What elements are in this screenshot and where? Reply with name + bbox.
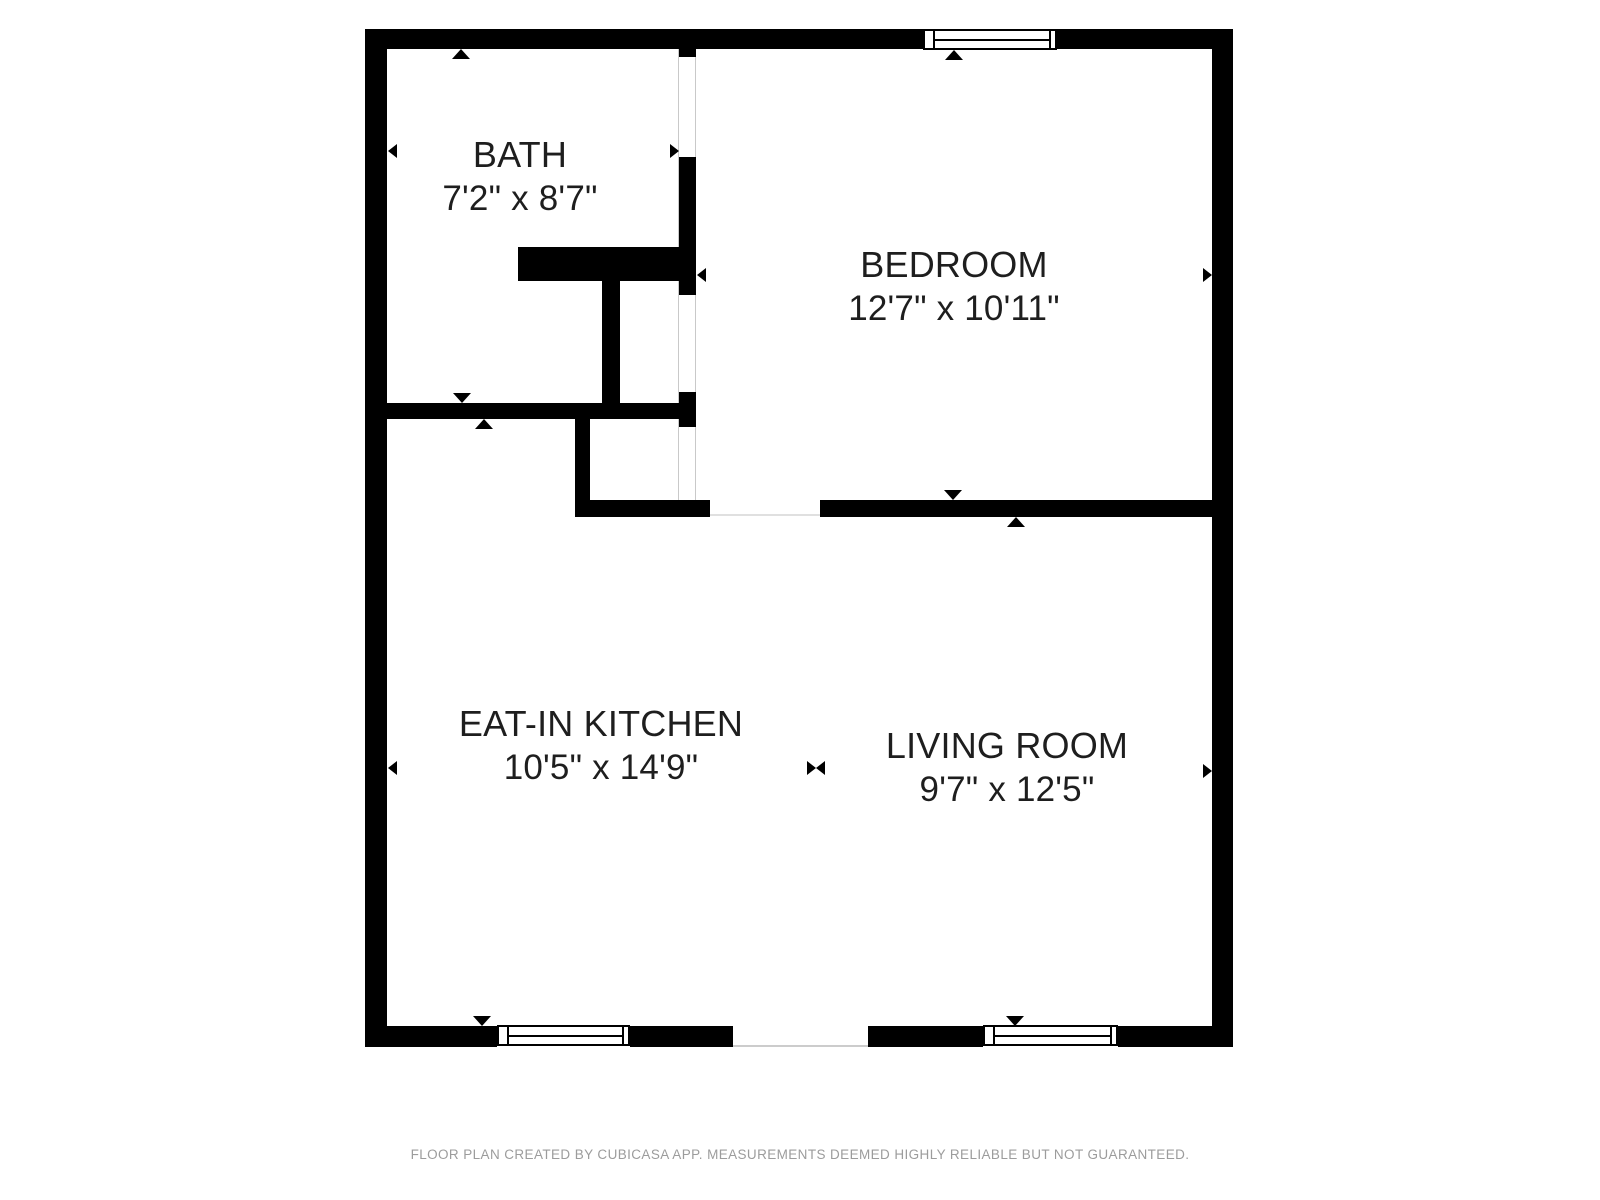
wall-outer-top: [365, 29, 1233, 49]
floor-plan: [0, 0, 1600, 1200]
room-label-living: LIVING ROOM 9'7" x 12'5": [886, 724, 1128, 812]
wall-outer-left: [365, 29, 387, 1047]
room-dimensions: 7'2" x 8'7": [442, 177, 597, 221]
room-label-bath: BATH 7'2" x 8'7": [442, 133, 597, 221]
bedroom-window-icon: [923, 29, 1057, 50]
wall-bedroom-bottom-left: [575, 500, 710, 517]
measure-triangle-living-bottom-icon: [1006, 1016, 1024, 1026]
room-label-kitchen: EAT-IN KITCHEN 10'5" x 14'9": [459, 702, 743, 790]
footer-disclaimer: FLOOR PLAN CREATED BY CUBICASA APP. MEAS…: [0, 1147, 1600, 1162]
window-mid-line: [993, 1035, 1110, 1037]
measure-triangle-bedroom-left-icon: [697, 268, 706, 282]
measure-triangle-kitchen-left-icon: [388, 761, 397, 775]
wall-bedroom-bottom-right: [820, 500, 1212, 517]
measure-triangle-bedroom-top-icon: [945, 50, 963, 60]
room-dimensions: 12'7" x 10'11": [848, 287, 1060, 331]
wall-closet-left: [602, 281, 620, 403]
measure-triangle-kitchen-top-icon: [475, 419, 493, 429]
room-name: BEDROOM: [848, 243, 1060, 287]
wall-vestibule-left: [575, 419, 590, 500]
window-jamb: [622, 1027, 624, 1044]
wall-bath-closet-top: [518, 247, 696, 281]
room-name: EAT-IN KITCHEN: [459, 702, 743, 746]
floor-plan-canvas: BATH 7'2" x 8'7" BEDROOM 12'7" x 10'11" …: [0, 0, 1600, 1200]
measure-triangle-bath-top-icon: [452, 49, 470, 59]
living-window-icon: [983, 1025, 1118, 1046]
door-threshold-line: [733, 1045, 868, 1047]
room-label-bedroom: BEDROOM 12'7" x 10'11": [848, 243, 1060, 331]
measure-triangle-living-top-icon: [1007, 517, 1025, 527]
window-jamb: [1049, 31, 1051, 48]
wall-bath-bottom: [387, 403, 696, 419]
measure-triangle-bath-bottom-icon: [453, 393, 471, 403]
measure-triangle-living-left-icon: [816, 761, 825, 775]
window-mid-line: [933, 39, 1049, 41]
room-name: BATH: [442, 133, 597, 177]
kitchen-window-icon: [497, 1025, 630, 1046]
room-dimensions: 10'5" x 14'9": [459, 746, 743, 790]
measure-triangle-kitchen-bottom-icon: [473, 1016, 491, 1026]
measure-triangle-bath-left-icon: [388, 144, 397, 158]
measure-triangle-bedroom-right-icon: [1203, 268, 1212, 282]
wall-outer-right: [1212, 29, 1233, 1047]
entry-door-gap: [733, 1026, 868, 1047]
window-mid-line: [507, 1035, 622, 1037]
room-dimensions: 9'7" x 12'5": [886, 768, 1128, 812]
window-jamb: [1110, 1027, 1112, 1044]
measure-triangle-bath-right-icon: [670, 144, 679, 158]
measure-triangle-living-right-icon: [1203, 764, 1212, 778]
opening-edge-line: [710, 514, 820, 516]
wall-bath-bedroom-stub: [679, 49, 696, 57]
measure-triangle-kitchen-right-icon: [807, 761, 816, 775]
room-name: LIVING ROOM: [886, 724, 1128, 768]
measure-triangle-bedroom-bottom-icon: [944, 490, 962, 500]
